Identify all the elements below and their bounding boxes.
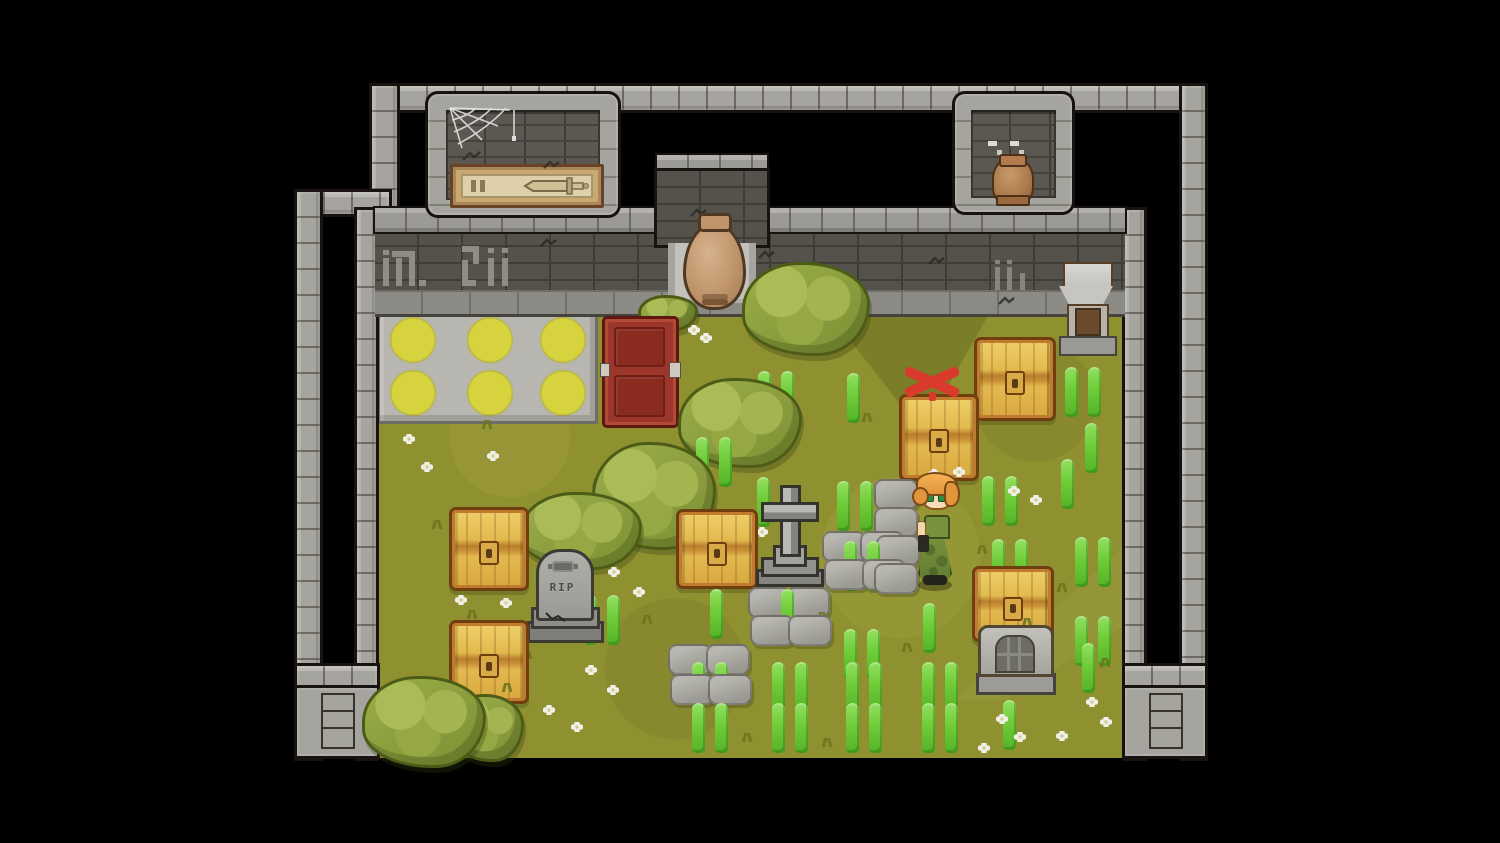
flower bbox=[607, 685, 619, 695]
grass-tuft bbox=[500, 683, 516, 692]
treasure-chest[interactable] bbox=[974, 337, 1056, 421]
flower bbox=[500, 598, 512, 608]
character-hair-bun bbox=[912, 487, 929, 506]
stone-furnace[interactable] bbox=[1056, 262, 1116, 354]
wall-scratch bbox=[998, 296, 1016, 306]
gravestone[interactable]: RIP bbox=[527, 549, 598, 649]
grass-tuft bbox=[430, 520, 446, 529]
flower bbox=[403, 434, 415, 444]
red-x-marker bbox=[903, 365, 961, 399]
grass-tuft bbox=[1098, 658, 1114, 667]
grass-tuft bbox=[975, 545, 991, 554]
flower bbox=[421, 462, 433, 472]
sprout-pair bbox=[981, 476, 1019, 526]
furnace-base bbox=[1059, 336, 1117, 356]
sprout-pair bbox=[921, 703, 959, 753]
sword-sign[interactable] bbox=[450, 164, 604, 208]
sword-icon bbox=[523, 177, 589, 195]
red-chest-hinges bbox=[600, 363, 610, 377]
character-boots bbox=[923, 575, 947, 585]
stone-platform-with-circles bbox=[377, 310, 598, 424]
flower bbox=[455, 595, 467, 605]
pillar-left-window bbox=[321, 693, 355, 749]
red-chest[interactable] bbox=[602, 316, 679, 428]
stone-slab bbox=[874, 563, 918, 594]
flower bbox=[688, 325, 700, 335]
gravestone-emblem-icon bbox=[552, 561, 574, 572]
sprout bbox=[847, 373, 861, 423]
flower bbox=[1008, 486, 1020, 496]
wall-scratch bbox=[928, 256, 946, 266]
treasure-chest[interactable] bbox=[676, 509, 758, 589]
furnace-hood bbox=[1059, 286, 1113, 306]
grass-tuft bbox=[820, 738, 836, 747]
sprout bbox=[1003, 700, 1017, 750]
pillar-right-window bbox=[1149, 693, 1183, 749]
graffiti-runes-left2 bbox=[462, 246, 518, 294]
sprout bbox=[1082, 643, 1096, 693]
flower bbox=[585, 665, 597, 675]
flower bbox=[1056, 731, 1068, 741]
sprout bbox=[1085, 423, 1099, 473]
flower bbox=[487, 451, 499, 461]
cobweb-icon bbox=[448, 106, 532, 158]
wall-scratch bbox=[462, 150, 482, 162]
bush bbox=[362, 676, 486, 768]
flower bbox=[1030, 495, 1042, 505]
sprout-pair bbox=[836, 481, 874, 531]
flower bbox=[633, 587, 645, 597]
red-chest-panel bbox=[614, 327, 665, 367]
sprout bbox=[1061, 459, 1075, 509]
red-chest-panel bbox=[614, 375, 665, 417]
flower bbox=[571, 722, 583, 732]
flower bbox=[1014, 732, 1026, 742]
stone-cross bbox=[756, 485, 818, 583]
graffiti-runes-right bbox=[995, 258, 1033, 294]
wall-scratch bbox=[758, 250, 776, 260]
sprout-pair bbox=[1064, 367, 1102, 417]
sign-marks bbox=[471, 180, 476, 192]
character-held-item bbox=[918, 535, 929, 552]
pillar-left-lintel bbox=[297, 666, 377, 690]
gravestone-crack bbox=[545, 611, 567, 623]
sprout-pair bbox=[691, 703, 729, 753]
bush bbox=[742, 262, 870, 356]
player-character[interactable] bbox=[911, 471, 959, 593]
gravestone-inscription: RIP bbox=[527, 581, 598, 594]
grass-tuft bbox=[480, 420, 496, 429]
grass-tuft bbox=[465, 610, 481, 619]
game-screen: RIP bbox=[0, 0, 1500, 843]
grass-tuft bbox=[640, 615, 656, 624]
treasure-chest-marked[interactable] bbox=[899, 394, 979, 481]
treasure-chest[interactable] bbox=[449, 507, 529, 591]
flower bbox=[978, 743, 990, 753]
flower bbox=[1086, 697, 1098, 707]
sprout bbox=[710, 589, 724, 639]
flower bbox=[543, 705, 555, 715]
stone-slab bbox=[788, 615, 832, 646]
cross-horizontal bbox=[761, 502, 819, 522]
grass-tuft bbox=[1055, 583, 1071, 592]
stone-crypt[interactable] bbox=[978, 625, 1048, 691]
grass-tuft bbox=[900, 643, 916, 652]
furnace-mouth bbox=[1075, 308, 1101, 336]
sprout-pair bbox=[1074, 537, 1112, 587]
stone-slab bbox=[708, 674, 752, 705]
crypt-door bbox=[995, 635, 1035, 673]
wall-outer-right-column bbox=[1182, 86, 1205, 758]
sprout-pair bbox=[771, 703, 809, 753]
x-marker-stem bbox=[929, 392, 936, 401]
graffiti-runes-left bbox=[383, 248, 449, 294]
furnace-chimney bbox=[1063, 262, 1113, 290]
sprout-pair bbox=[845, 703, 883, 753]
game-map: RIP bbox=[0, 0, 1500, 843]
flower bbox=[608, 567, 620, 577]
small-urn[interactable] bbox=[992, 158, 1034, 204]
wall-scratch bbox=[540, 238, 558, 248]
flower bbox=[1100, 717, 1112, 727]
grass-tuft bbox=[740, 733, 756, 742]
grass-tuft bbox=[860, 413, 876, 422]
sprout bbox=[923, 603, 937, 653]
pillar-right-lintel bbox=[1125, 666, 1205, 690]
flower bbox=[996, 714, 1008, 724]
wall-scratch bbox=[543, 160, 561, 170]
character-hair-swoosh bbox=[944, 481, 960, 507]
spider-icon bbox=[512, 136, 516, 141]
flower bbox=[700, 333, 712, 343]
